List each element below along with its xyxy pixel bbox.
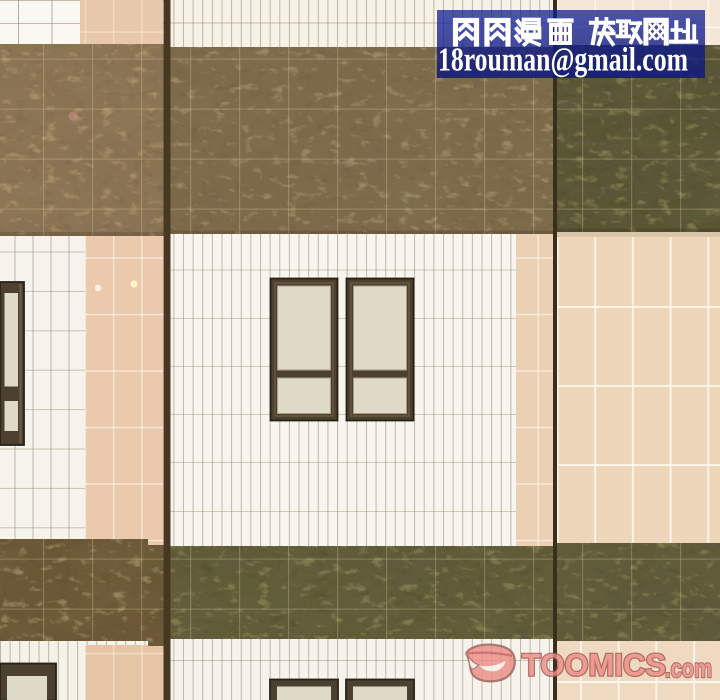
svg-text:TOOMICS: TOOMICS	[522, 647, 666, 683]
svg-text:.com: .com	[665, 653, 712, 683]
svg-text:18rouman@gmail.com: 18rouman@gmail.com	[438, 42, 688, 79]
